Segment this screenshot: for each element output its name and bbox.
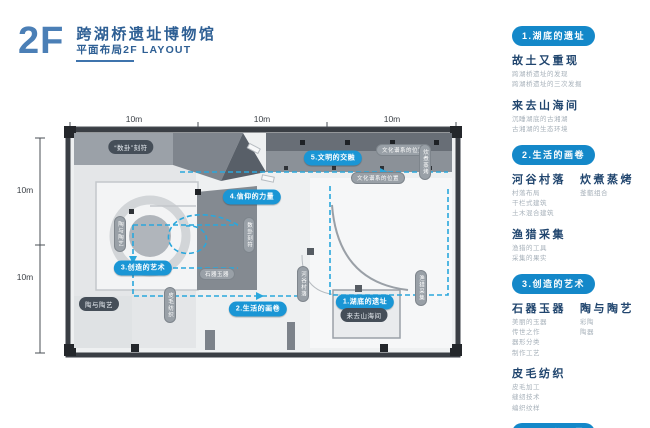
legend-column: 石器玉器 美丽的玉器 传世之作 器形分类 制作工艺 <box>512 294 566 360</box>
case-label-stone-jade: 石器玉器 <box>199 268 235 280</box>
unit-heading: 故土又重现 <box>512 52 646 68</box>
unit-item: 干栏式建筑 <box>512 199 566 209</box>
section-badge-4: 4.信仰的力量 <box>512 423 595 428</box>
unit-item: 皮毛加工 <box>512 383 646 393</box>
section-badge-3: 3.创造的艺术 <box>512 274 595 294</box>
route-badge-2: 2.生活的画卷 <box>229 302 287 317</box>
unit-item: 釜甑组合 <box>580 189 634 199</box>
case-label-fur-textile: 皮毛纺织 <box>164 287 176 323</box>
exhibit-label-pottery: 陶与陶艺 <box>79 297 119 311</box>
section-badge-1: 1.湖底的遗址 <box>512 26 595 46</box>
dim-top-3: 10m <box>384 114 401 124</box>
unit-item: 渔猎的工具 <box>512 244 646 254</box>
legend-sidebar: 1.湖底的遗址 故土又重现 跨湖桥遗址的发现 跨湖桥遗址的三次发掘 来去山海间 … <box>512 26 646 428</box>
unit-item: 跨湖桥遗址的发现 <box>512 70 646 80</box>
legend-section-1: 1.湖底的遗址 故土又重现 跨湖桥遗址的发现 跨湖桥遗址的三次发掘 来去山海间 … <box>512 26 646 136</box>
legend-column: 河谷村落 村落布局 干栏式建筑 土木混合建筑 <box>512 165 566 220</box>
dim-top-1: 10m <box>126 114 143 124</box>
unit-heading: 来去山海间 <box>512 97 646 113</box>
legend-column: 陶与陶艺 彩陶 陶器 <box>580 294 634 360</box>
dim-top-2: 10m <box>254 114 271 124</box>
dim-left-2: 10m <box>17 272 34 282</box>
route-badge-5: 5.文明的交融 <box>304 151 362 166</box>
unit-item: 古湘湖的生态环境 <box>512 125 646 135</box>
case-label-pottery-art: 陶与陶艺 <box>114 216 126 252</box>
unit-item: 彩陶 <box>580 318 634 328</box>
case-label-valley-village: 河谷村落 <box>297 266 309 302</box>
unit-item: 器形分类 <box>512 338 566 348</box>
lake-site-room <box>302 178 452 348</box>
unit-heading: 炊煮蒸烤 <box>580 171 634 187</box>
unit-item: 土木混合建筑 <box>512 209 566 219</box>
route-badge-3: 3.创造的艺术 <box>114 261 172 276</box>
legend-section-2: 2.生活的画卷 河谷村落 村落布局 干栏式建筑 土木混合建筑 炊煮蒸烤 釜甑组合… <box>512 145 646 265</box>
case-label-shugua-marks: 数卦刻符 <box>243 217 255 253</box>
legend-column: 炊煮蒸烤 釜甑组合 <box>580 165 634 220</box>
case-label-fishing-gathering: 渔猎采集 <box>415 270 427 306</box>
unit-item: 陶器 <box>580 328 634 338</box>
unit-heading: 石器玉器 <box>512 300 566 316</box>
unit-heading: 渔猎采集 <box>512 226 646 242</box>
unit-item: 美丽的玉器 <box>512 318 566 328</box>
unit-heading: 陶与陶艺 <box>580 300 634 316</box>
unit-item: 传世之作 <box>512 328 566 338</box>
unit-heading: 皮毛纺织 <box>512 365 646 381</box>
legend-section-3: 3.创造的艺术 石器玉器 美丽的玉器 传世之作 器形分类 制作工艺 陶与陶艺 彩… <box>512 274 646 415</box>
case-label-cooking: 炊煮蒸烤 <box>419 144 431 180</box>
unit-item: 跨湖桥遗址的三次发掘 <box>512 80 646 90</box>
route-badge-4: 4.信仰的力量 <box>223 190 281 205</box>
unit-item: 缝纫技术 <box>512 393 646 403</box>
legend-section-4: 4.信仰的力量 “数卦” 刻符号 “数卦”解读 刻划符号 <box>512 423 646 428</box>
case-label-lineage-2: 文化谱系的位置 <box>351 172 405 184</box>
museum-floorplan-page: 2F 跨湖桥遗址博物馆 平面布局2F LAYOUT <box>0 0 650 428</box>
exhibit-label-mountain-sea: 来去山海间 <box>341 308 388 322</box>
unit-item: 采集的果实 <box>512 254 646 264</box>
unit-heading: 河谷村落 <box>512 171 566 187</box>
unit-item: 沉睡湖底的古湘湖 <box>512 115 646 125</box>
unit-item: 制作工艺 <box>512 349 566 359</box>
unit-item: 村落布局 <box>512 189 566 199</box>
section-badge-2: 2.生活的画卷 <box>512 145 595 165</box>
unit-item: 编织纹样 <box>512 404 646 414</box>
dim-left-1: 10m <box>17 185 34 195</box>
exhibit-label-shugua: “数卦”刻符 <box>108 140 153 154</box>
